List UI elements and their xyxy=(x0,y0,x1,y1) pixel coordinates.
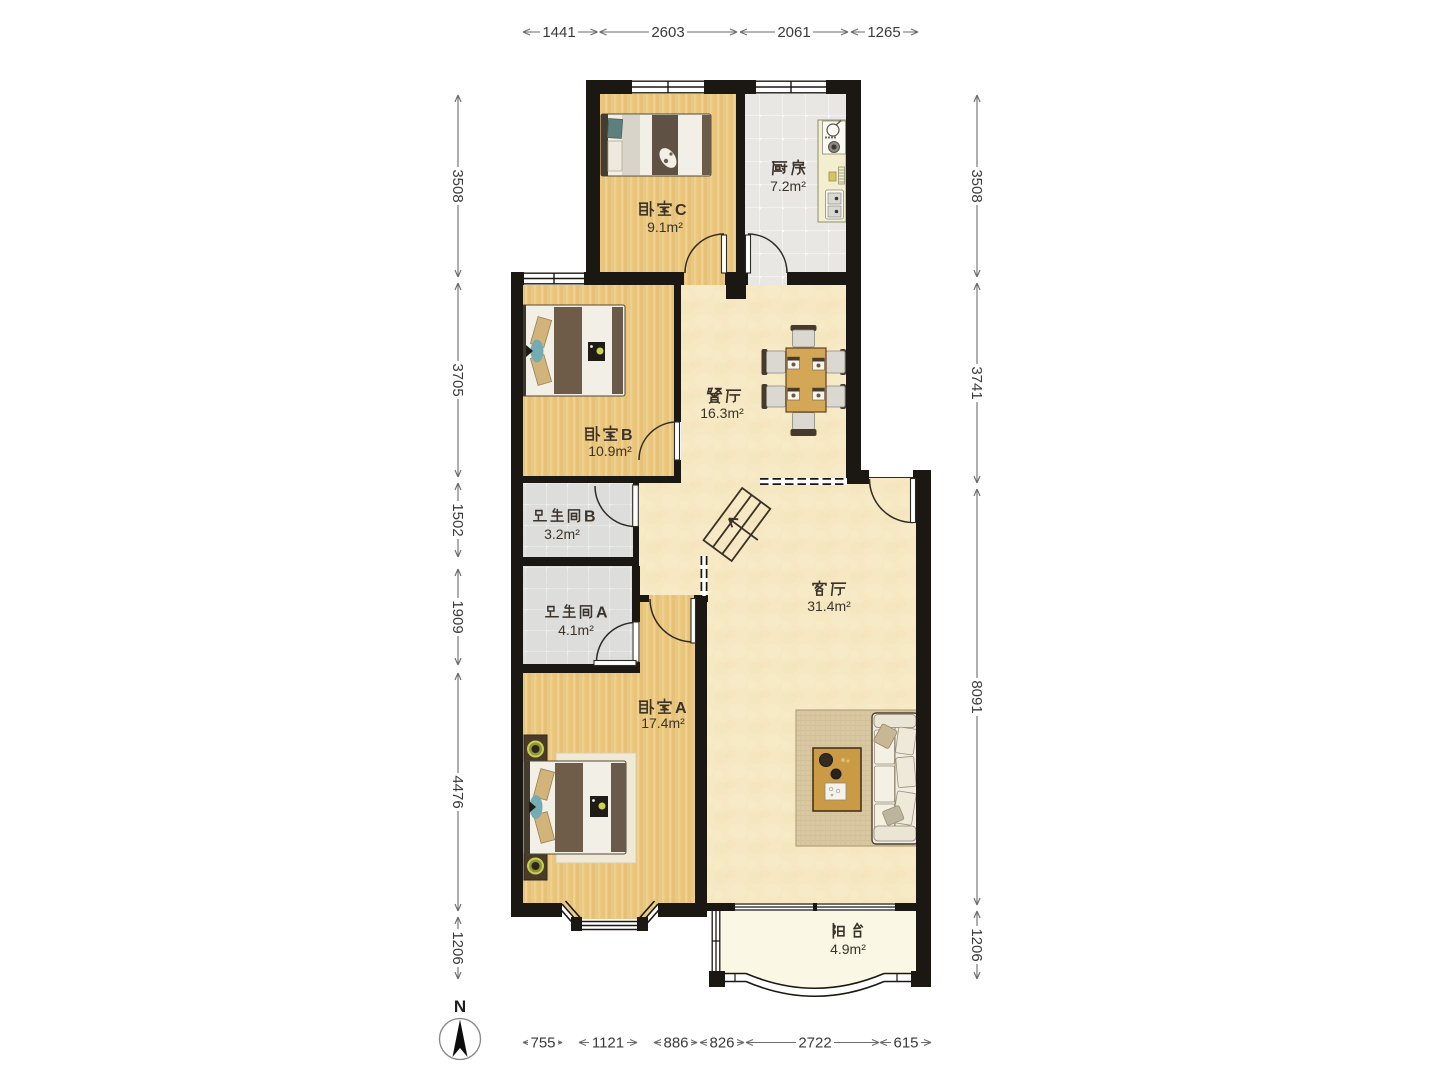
svg-text:1265: 1265 xyxy=(867,24,900,41)
svg-text:C: C xyxy=(675,202,687,219)
svg-text:755: 755 xyxy=(530,1035,555,1052)
svg-text:16.3m²: 16.3m² xyxy=(700,405,744,421)
svg-text:9.1m²: 9.1m² xyxy=(647,219,683,235)
svg-text:4476: 4476 xyxy=(449,775,466,808)
svg-text:8091: 8091 xyxy=(968,680,985,713)
svg-text:10.9m²: 10.9m² xyxy=(588,443,632,459)
svg-text:3.2m²: 3.2m² xyxy=(544,526,580,542)
svg-text:A: A xyxy=(596,605,608,622)
svg-text:2603: 2603 xyxy=(651,24,684,41)
svg-text:2722: 2722 xyxy=(798,1035,831,1052)
svg-text:1206: 1206 xyxy=(968,928,985,961)
svg-text:4.9m²: 4.9m² xyxy=(830,941,866,957)
svg-text:B: B xyxy=(584,509,596,526)
svg-text:1206: 1206 xyxy=(449,931,466,964)
svg-text:3508: 3508 xyxy=(449,169,466,202)
svg-text:3741: 3741 xyxy=(968,366,985,399)
svg-text:7.2m²: 7.2m² xyxy=(770,178,806,194)
svg-text:1121: 1121 xyxy=(592,1035,624,1052)
svg-text:1502: 1502 xyxy=(449,503,466,536)
svg-text:3508: 3508 xyxy=(968,169,985,202)
svg-text:3705: 3705 xyxy=(449,363,466,396)
svg-text:1441: 1441 xyxy=(542,24,575,41)
svg-text:2061: 2061 xyxy=(777,24,810,41)
svg-text:B: B xyxy=(621,427,633,444)
svg-text:1909: 1909 xyxy=(449,600,466,633)
svg-text:4.1m²: 4.1m² xyxy=(558,622,594,638)
svg-text:615: 615 xyxy=(893,1035,918,1052)
svg-text:826: 826 xyxy=(709,1035,734,1052)
svg-text:N: N xyxy=(454,997,466,1016)
svg-text:886: 886 xyxy=(663,1035,688,1052)
svg-text:17.4m²: 17.4m² xyxy=(641,715,685,731)
svg-text:31.4m²: 31.4m² xyxy=(807,598,851,614)
